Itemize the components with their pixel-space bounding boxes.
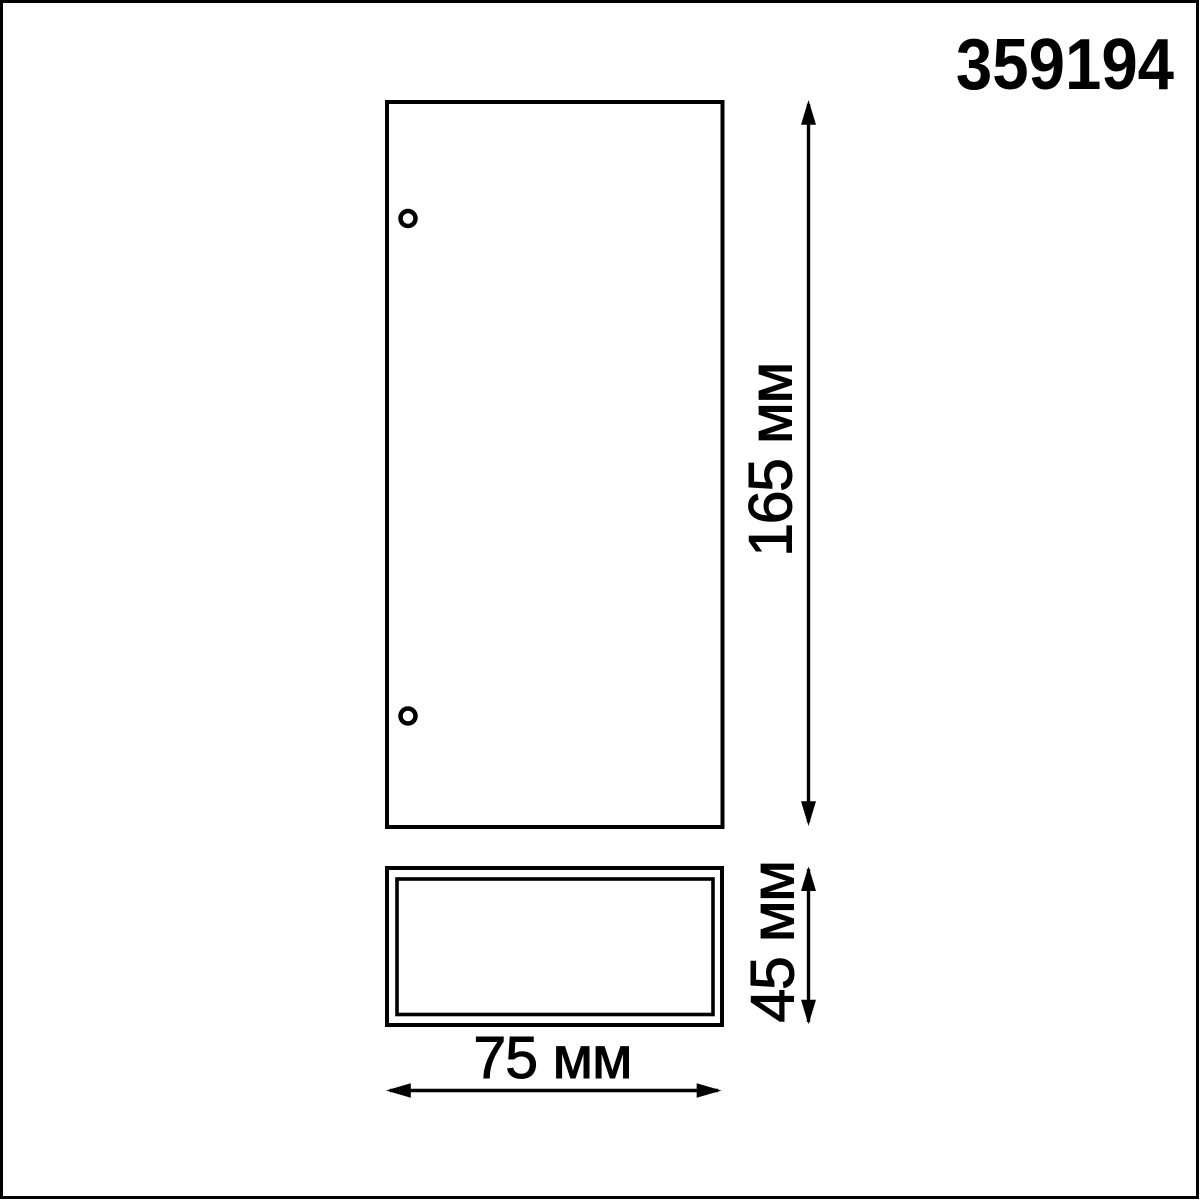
svg-text:75 мм: 75 мм [473, 1025, 631, 1091]
svg-text:165 мм: 165 мм [737, 363, 805, 557]
svg-text:359194: 359194 [956, 24, 1174, 105]
svg-text:45 мм: 45 мм [739, 861, 807, 1022]
